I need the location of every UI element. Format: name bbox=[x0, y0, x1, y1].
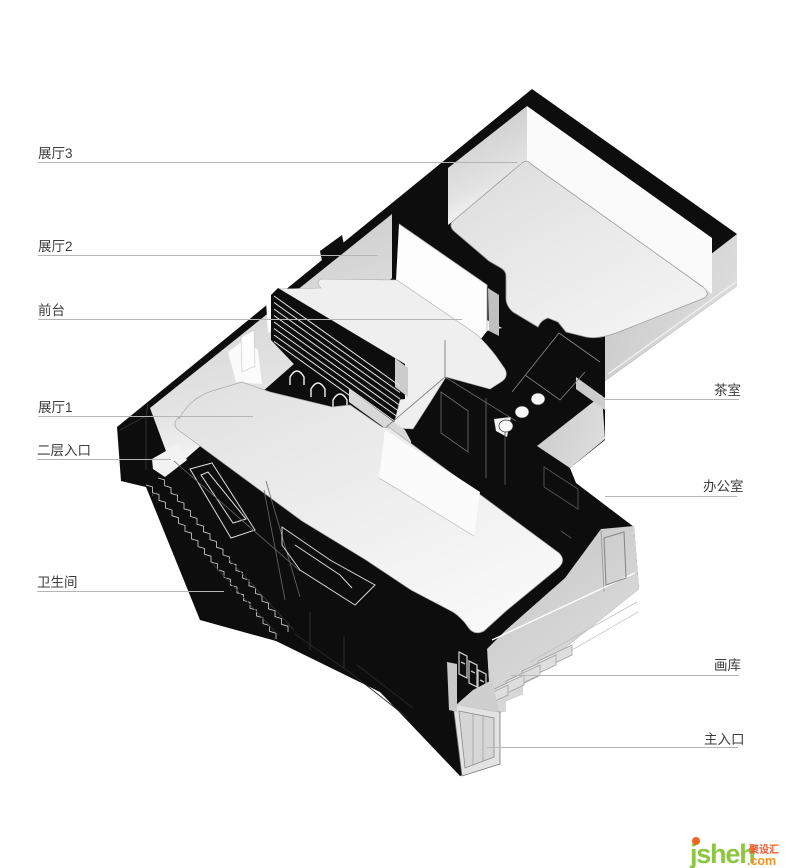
svg-text:主入口: 主入口 bbox=[704, 732, 745, 747]
svg-text:茶室: 茶室 bbox=[714, 382, 741, 398]
svg-text:卫生间: 卫生间 bbox=[37, 575, 78, 590]
svg-text:展厅1: 展厅1 bbox=[38, 400, 73, 415]
svg-text:.com: .com bbox=[747, 854, 776, 868]
svg-text:画库: 画库 bbox=[714, 658, 741, 673]
svg-text:二层入口: 二层入口 bbox=[37, 443, 91, 458]
svg-text:前台: 前台 bbox=[38, 302, 65, 318]
svg-text:展厅2: 展厅2 bbox=[38, 239, 73, 254]
svg-text:展厅3: 展厅3 bbox=[38, 146, 73, 161]
svg-text:办公室: 办公室 bbox=[703, 478, 744, 494]
